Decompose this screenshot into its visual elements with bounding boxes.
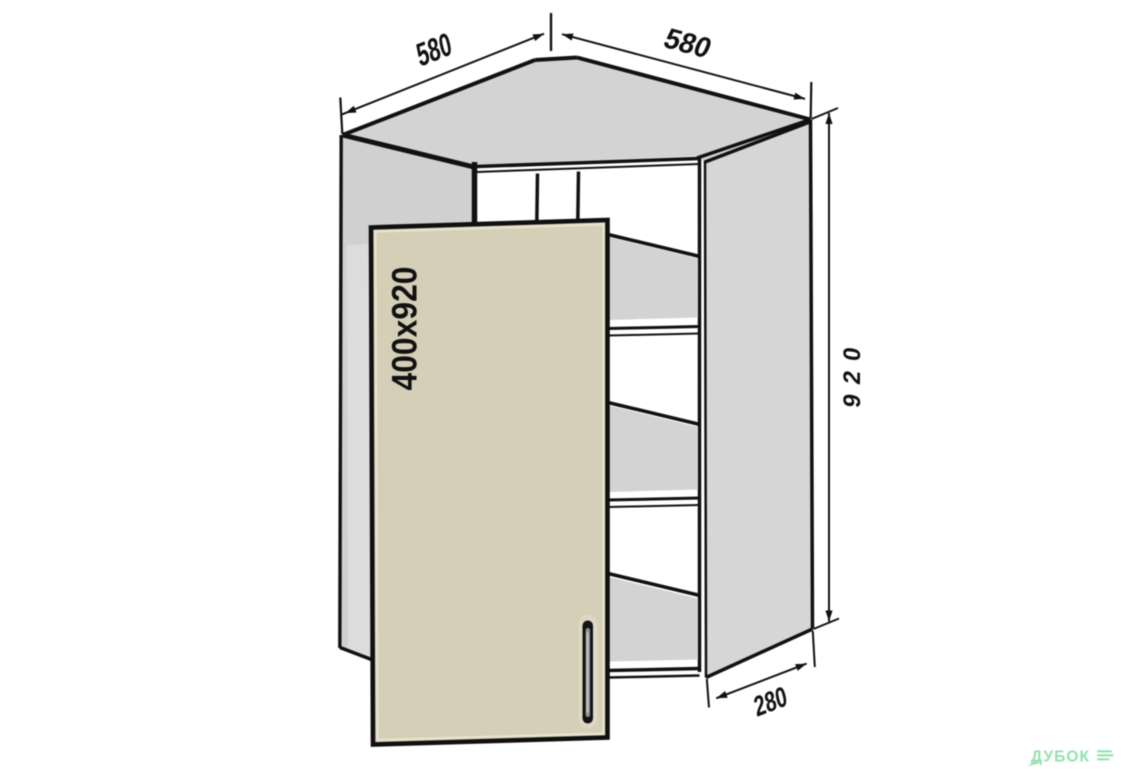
svg-text:ДУБОК: ДУБОК [1031, 748, 1091, 765]
svg-text:400x920: 400x920 [386, 267, 425, 391]
svg-text:920: 920 [839, 346, 866, 410]
